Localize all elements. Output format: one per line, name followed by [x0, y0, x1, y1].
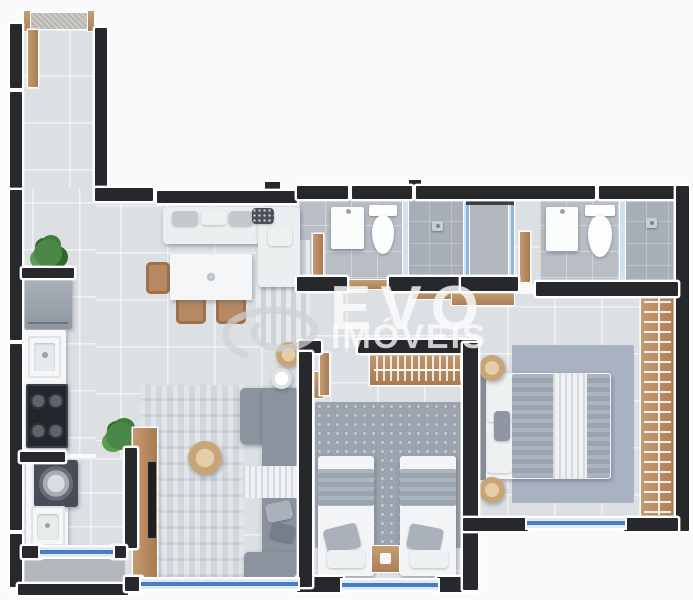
bathroom-social-sink — [331, 207, 364, 249]
wall-right — [676, 186, 689, 531]
nightstand-bedroom-double — [372, 546, 399, 572]
shower-glass-social — [403, 201, 408, 278]
wall-bed2-left — [299, 352, 312, 587]
kitchen-sink — [28, 336, 61, 378]
sofa-pillow-white-2 — [268, 228, 292, 246]
entry-doorframe-left — [24, 11, 30, 31]
washing-machine — [34, 460, 78, 507]
dining-table — [170, 254, 252, 300]
shaft-top-edge — [466, 199, 514, 205]
nightstand-deco — [380, 553, 391, 564]
window-bedroom-master — [527, 518, 625, 528]
single-bed-left-pillow-white — [327, 550, 365, 568]
master-bed — [485, 373, 611, 479]
wall-kitchen-niche — [22, 268, 74, 278]
wall-left-3 — [10, 534, 22, 587]
single-bed-left — [318, 456, 374, 576]
window-bedroom-double — [342, 580, 438, 590]
bathroom-social-toilet — [369, 205, 397, 254]
shower-head-suite — [646, 218, 657, 228]
bathroom-suite-toilet — [585, 205, 615, 257]
wall-top-c2 — [352, 186, 412, 199]
entry-lintel — [28, 13, 90, 29]
wall-corridor-left-2 — [10, 92, 22, 190]
wall-top-b — [157, 191, 297, 203]
window-laundry — [40, 547, 113, 557]
wall-corridor-left-1 — [10, 24, 22, 88]
shaft-glass-left — [464, 202, 469, 277]
window-living — [141, 579, 298, 589]
dining-chair-bottom-2 — [216, 297, 246, 324]
sofa-pillow-gray-2 — [229, 211, 253, 226]
cooktop — [26, 384, 68, 448]
tv — [148, 462, 156, 538]
wall-corridor-right — [95, 28, 107, 188]
floor-service-balcony — [22, 556, 125, 586]
wall-shaft-bottom — [461, 277, 518, 291]
bathroom-social-threshold — [348, 280, 390, 289]
gray-sofa-armrest — [244, 552, 300, 580]
single-bed-left-blanket — [318, 469, 374, 506]
wall-top-c1 — [297, 186, 348, 199]
wall-laundry-right — [125, 448, 137, 548]
wall-top-a — [95, 188, 153, 201]
wall-top-c3 — [416, 186, 595, 199]
coffee-table — [188, 441, 222, 475]
sofa-throw-blanket — [243, 466, 300, 498]
wall-bed2-master-divider — [463, 343, 478, 590]
bathroom-social-door-leaf — [313, 234, 323, 280]
laundry-sink — [31, 506, 65, 546]
bathroom-suite-door-leaf — [520, 232, 530, 282]
open-closet-master — [641, 288, 674, 517]
bathroom-suite-sink — [546, 207, 578, 251]
wall-laundry-window-stub-right — [112, 546, 126, 558]
sofa-pillow-patterned — [252, 208, 274, 224]
single-bed-right-blanket — [400, 469, 456, 506]
wall-left-2 — [10, 344, 22, 530]
floor-shower-suite — [624, 199, 677, 283]
sofa-pillow-gray-1 — [172, 211, 198, 226]
master-pillow-accent — [494, 411, 510, 441]
living-plant — [106, 422, 136, 450]
master-bed-headboard — [477, 372, 486, 480]
floor-shower-social — [407, 199, 466, 280]
side-table-rattan — [276, 342, 301, 367]
master-nightstand-top — [479, 355, 505, 381]
side-table-white — [271, 368, 292, 389]
bedroom-double-door-leaf — [320, 353, 329, 395]
floor-plan-canvas: EVO IMÓVEIS — [0, 0, 693, 600]
laundry-faucet — [45, 523, 50, 528]
wall-bath-social-bottom-right — [389, 277, 464, 291]
wardrobe-bedroom-double — [370, 352, 467, 385]
kitchen-faucet — [42, 352, 48, 358]
single-bed-right-pillow-white — [410, 550, 448, 568]
wall-master-bottom-left — [463, 518, 528, 531]
wall-laundry-divider — [20, 452, 65, 462]
kitchen-plant — [34, 239, 62, 267]
single-bed-right — [400, 456, 456, 576]
entry-doorframe-right — [88, 11, 94, 31]
table-vase — [207, 273, 215, 281]
shower-glass-suite — [620, 201, 625, 281]
dining-chair-left — [146, 262, 170, 294]
dining-chair-bottom-1 — [176, 297, 206, 324]
wall-balcony-bottom — [18, 584, 128, 595]
floor-ventilation-shaft — [466, 199, 514, 279]
wall-tab-1 — [265, 182, 280, 190]
wall-bath-social-bottom-left — [297, 277, 347, 291]
wall-living-window-stub-left — [125, 577, 142, 591]
refrigerator — [24, 277, 72, 329]
wall-bed2-top — [358, 340, 477, 353]
master-entry-console — [452, 292, 514, 305]
master-nightstand-bottom — [479, 477, 505, 503]
wall-left-1 — [10, 190, 22, 340]
entry-door-leaf — [28, 30, 38, 87]
shower-head-social — [432, 221, 443, 231]
shaft-glass-right — [509, 202, 514, 277]
wall-laundry-window-stub-left — [22, 546, 41, 558]
wall-master-bottom-right — [624, 518, 678, 531]
master-folded-throw — [553, 373, 587, 479]
wall-master-top — [536, 282, 678, 296]
sofa-pillow-white-1 — [201, 210, 227, 225]
wall-top-c4 — [599, 186, 688, 199]
